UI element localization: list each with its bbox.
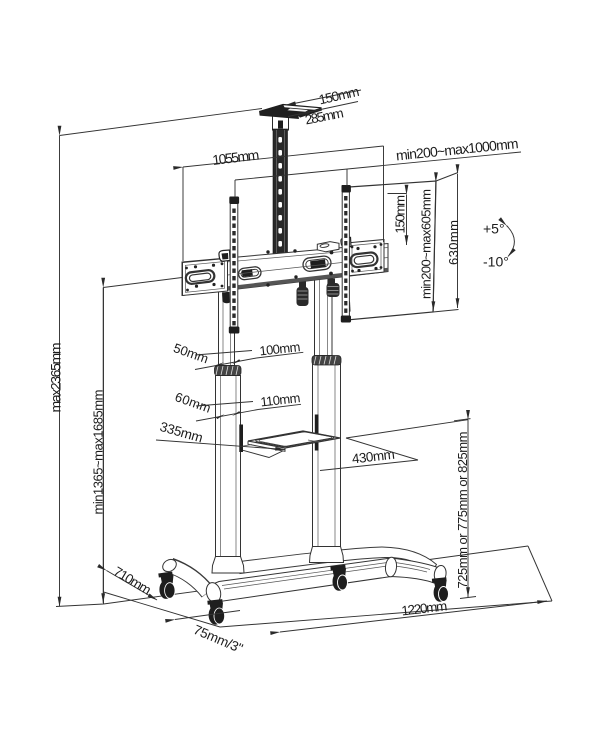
- svg-text:min1365~max1685mm: min1365~max1685mm: [91, 390, 106, 515]
- svg-text:min200~max605mm: min200~max605mm: [419, 189, 434, 299]
- svg-text:150mm: 150mm: [393, 195, 408, 234]
- svg-text:-10°: -10°: [483, 254, 509, 270]
- svg-text:max2365mm: max2365mm: [48, 343, 64, 413]
- svg-text:630mm: 630mm: [446, 220, 461, 265]
- svg-text:+5°: +5°: [483, 221, 505, 237]
- svg-text:725mm or 775mm or 825mm: 725mm or 775mm or 825mm: [455, 432, 470, 589]
